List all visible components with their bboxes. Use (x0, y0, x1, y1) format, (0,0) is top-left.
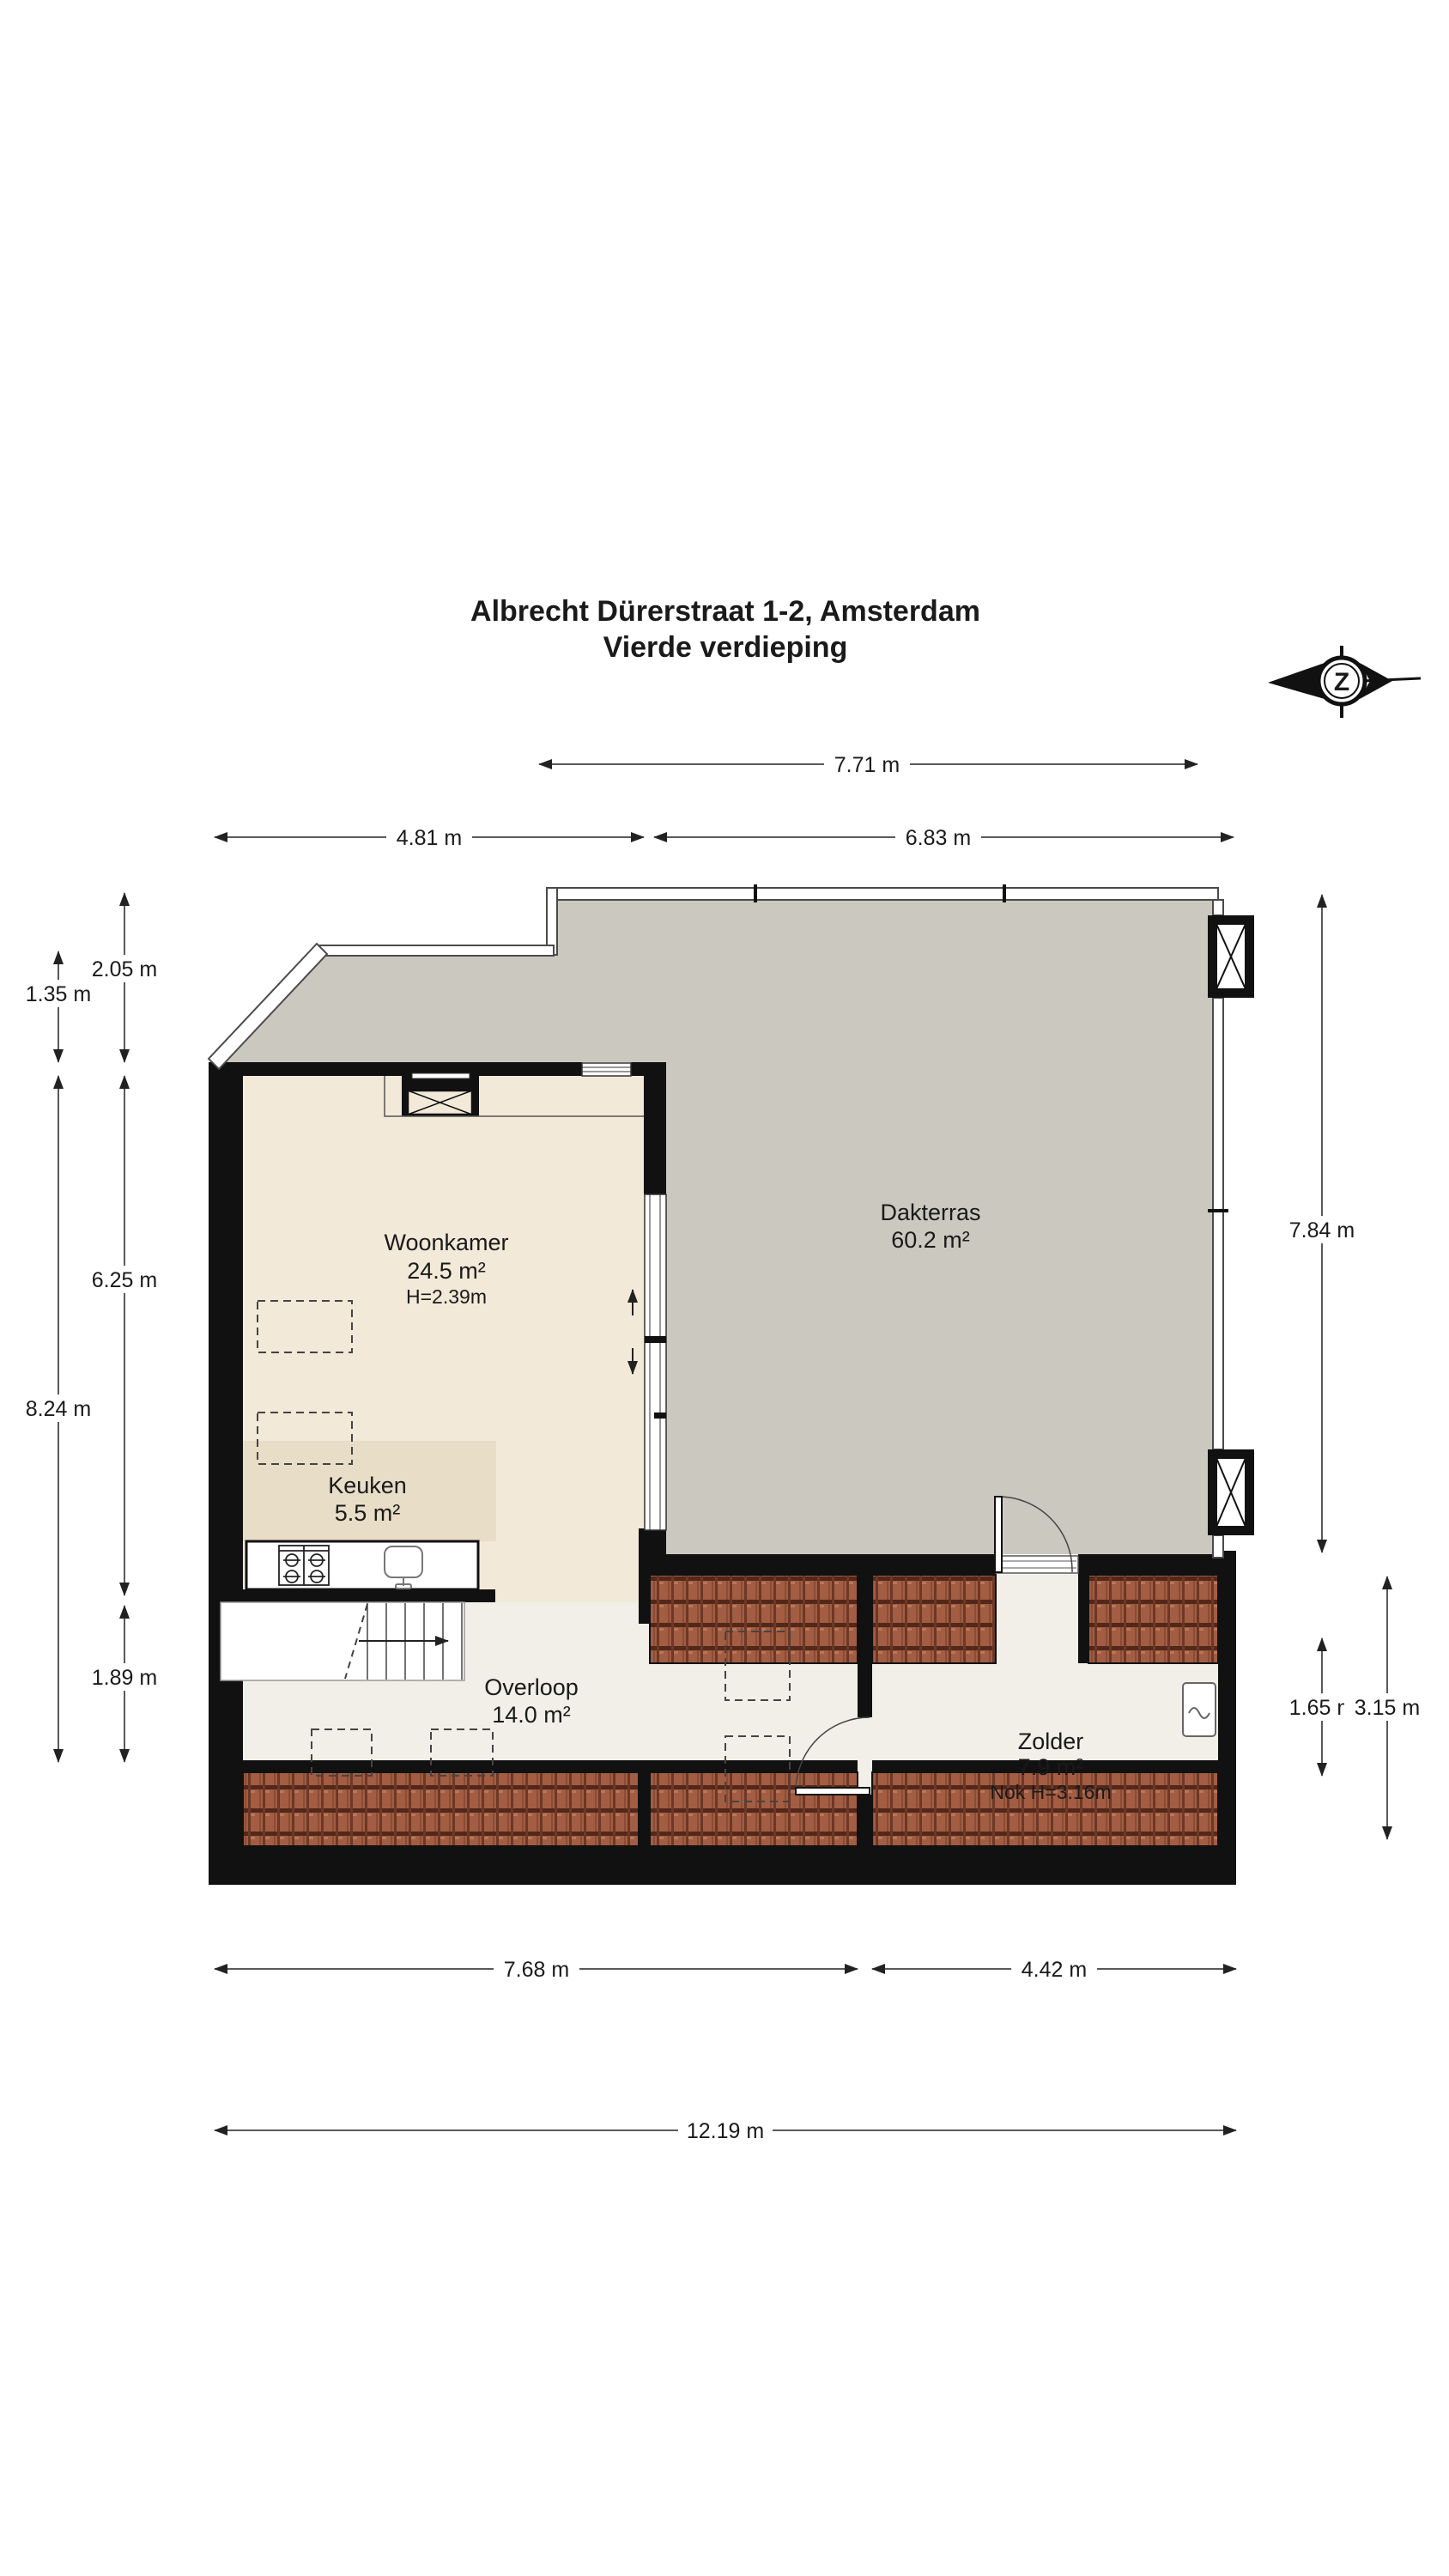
dim-left-outer-main: 8.24 m (26, 1397, 91, 1421)
compass-letter: Z (1334, 668, 1349, 696)
dim-top-left: 4.81 m (397, 826, 462, 850)
floorplan-drawing: Albrecht Dürerstraat 1-2, Amsterdam Vier… (0, 0, 1449, 2576)
zolder-height: Nok H=3.16m (990, 1781, 1111, 1803)
woonkamer-label: Woonkamer (384, 1230, 508, 1255)
dim-left-inner-bottom: 1.89 m (92, 1666, 157, 1690)
dim-bottom-full: 12.19 m (687, 2119, 764, 2143)
keuken-label: Keuken (328, 1473, 407, 1498)
woonkamer-top-window (582, 1063, 631, 1076)
terrace-window-bottom (1208, 1449, 1254, 1535)
dim-bottom-left: 7.68 m (504, 1958, 569, 1982)
north-compass-icon: Z (1268, 646, 1421, 718)
dakterras-label: Dakterras (880, 1200, 980, 1225)
title-line-1: Albrecht Dürerstraat 1-2, Amsterdam (470, 595, 980, 628)
door-gap-floor (858, 1717, 872, 1795)
title-line-2: Vierde verdieping (603, 631, 848, 664)
dim-right-main: 7.84 m (1289, 1218, 1355, 1242)
woonkamer-area: 24.5 m² (407, 1258, 486, 1284)
woonkamer-height: H=2.39m (406, 1285, 487, 1308)
dim-left-outer-top: 1.35 m (26, 982, 91, 1006)
dim-top-right: 6.83 m (906, 826, 971, 850)
dim-top-full: 7.71 m (834, 753, 900, 777)
dim-left-inner-top: 2.05 m (92, 957, 157, 981)
overloop-label: Overloop (484, 1674, 579, 1700)
dakterras-area: 60.2 m² (891, 1227, 970, 1253)
staircase (221, 1602, 464, 1680)
dim-right-nok: 3.15 m (1355, 1696, 1420, 1720)
dim-bottom-right: 4.42 m (1022, 1958, 1087, 1982)
zolder-label: Zolder (1018, 1728, 1084, 1754)
page-title: Albrecht Dürerstraat 1-2, Amsterdam Vier… (470, 595, 980, 664)
overloop-area: 14.0 m² (492, 1702, 571, 1728)
terrace-window-top (1208, 915, 1254, 998)
keuken-area: 5.5 m² (335, 1500, 401, 1526)
zolder-door-recess-floor (996, 1575, 1078, 1663)
kitchen-counter (246, 1541, 478, 1589)
radiator-icon (1183, 1683, 1216, 1736)
zolder-area: 7.9 m² (1018, 1754, 1084, 1780)
floorplan-page: Albrecht Dürerstraat 1-2, Amsterdam Vier… (0, 0, 1449, 2576)
dim-left-inner-main: 6.25 m (92, 1268, 157, 1292)
